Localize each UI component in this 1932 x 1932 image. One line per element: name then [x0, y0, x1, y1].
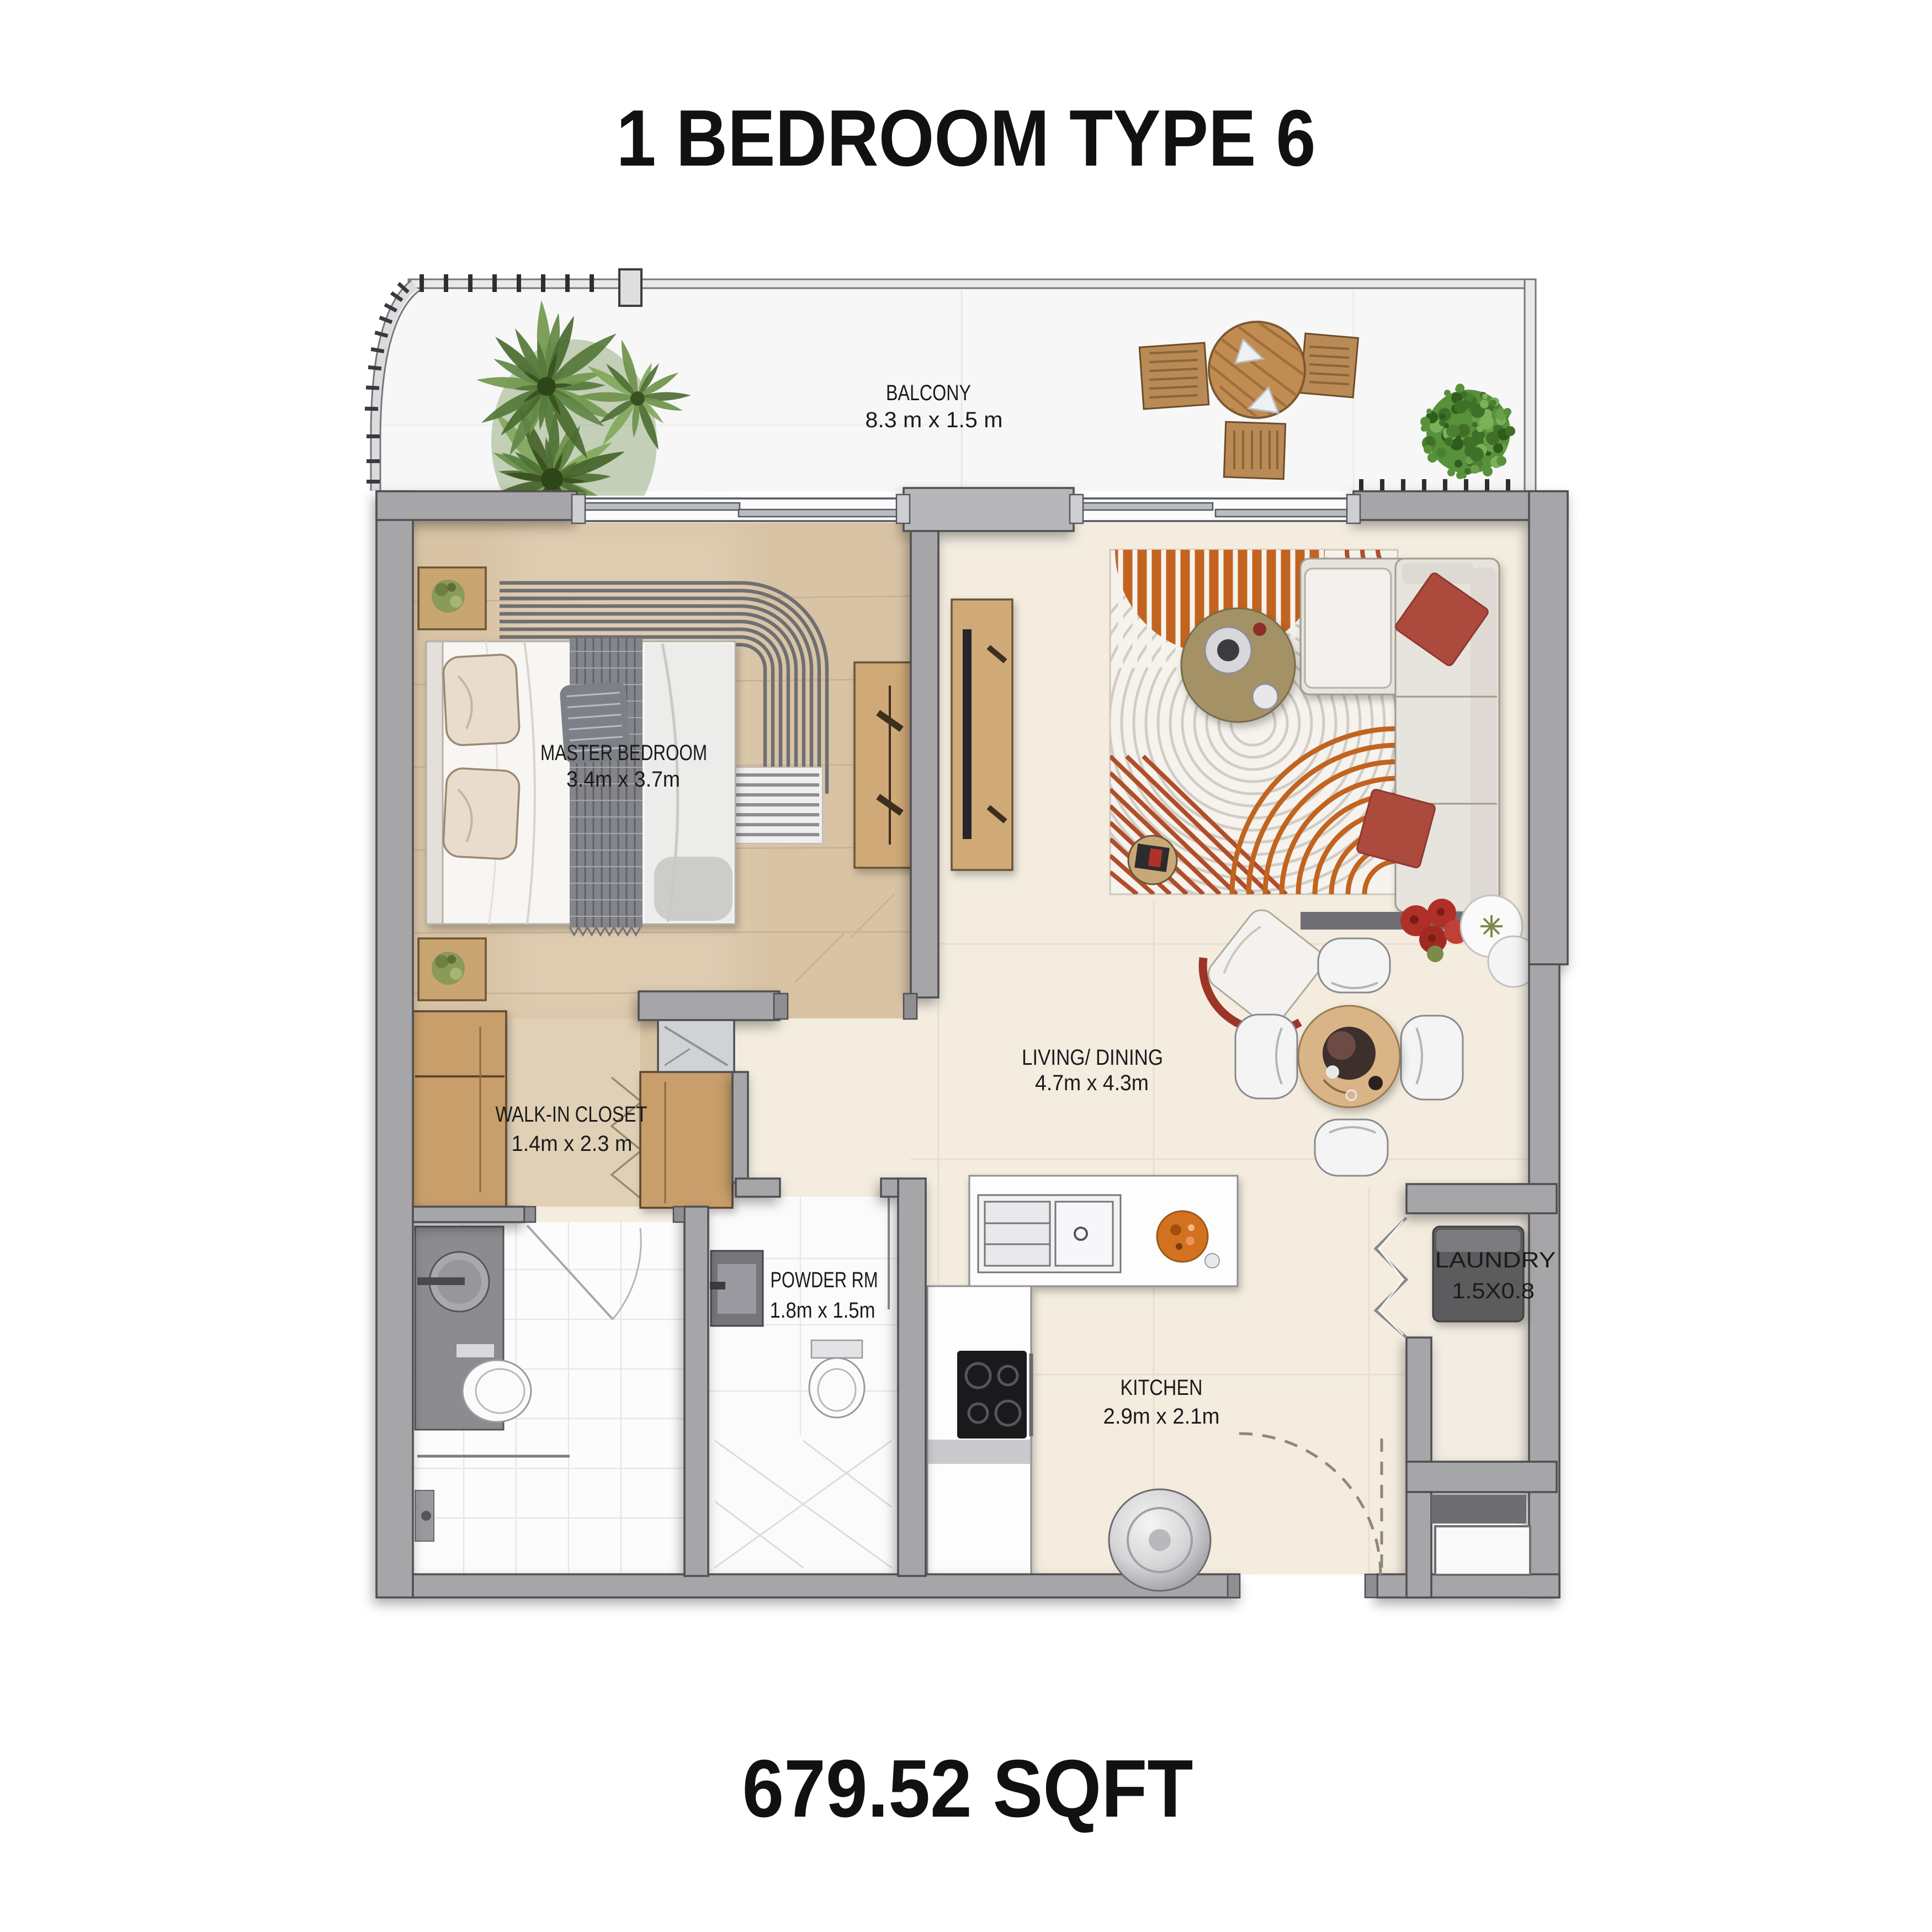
svg-text:679.52 SQFT: 679.52 SQFT	[742, 1743, 1193, 1834]
svg-text:KITCHEN: KITCHEN	[1121, 1376, 1203, 1400]
svg-text:WALK-IN CLOSET: WALK-IN CLOSET	[496, 1102, 647, 1127]
svg-text:POWDER RM: POWDER RM	[771, 1268, 878, 1292]
svg-text:8.3 m x 1.5 m: 8.3 m x 1.5 m	[866, 408, 1003, 432]
svg-text:4.7m x 4.3m: 4.7m x 4.3m	[1035, 1071, 1149, 1095]
svg-text:MASTER BEDROOM: MASTER BEDROOM	[540, 741, 707, 765]
svg-text:LAUNDRY: LAUNDRY	[1435, 1248, 1556, 1272]
svg-text:1.8m x 1.5m: 1.8m x 1.5m	[770, 1298, 875, 1323]
svg-text:LIVING/ DINING: LIVING/ DINING	[1022, 1045, 1163, 1070]
svg-text:1.4m x 2.3 m: 1.4m x 2.3 m	[512, 1132, 633, 1156]
svg-text:BALCONY: BALCONY	[886, 381, 971, 405]
svg-text:2.9m x 2.1m: 2.9m x 2.1m	[1103, 1404, 1220, 1429]
svg-text:3.4m x 3.7m: 3.4m x 3.7m	[566, 767, 680, 792]
svg-text:1.5X0.8: 1.5X0.8	[1452, 1279, 1535, 1303]
svg-text:1 BEDROOM TYPE 6: 1 BEDROOM TYPE 6	[617, 93, 1316, 183]
